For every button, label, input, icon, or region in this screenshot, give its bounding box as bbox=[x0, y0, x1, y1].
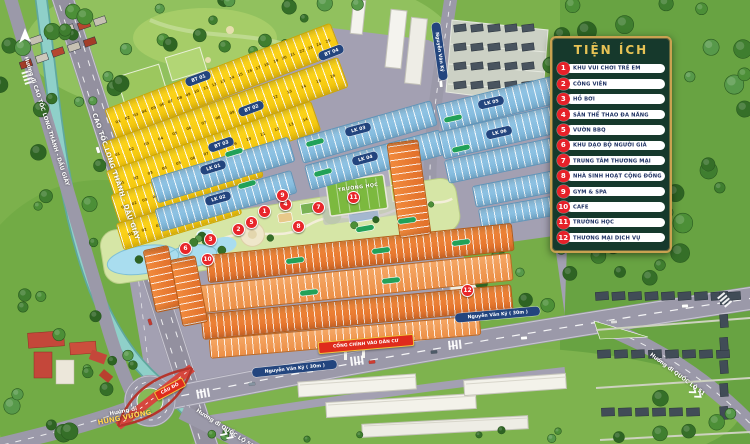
amenity-marker-11: 11 bbox=[347, 191, 360, 204]
legend-item: 12THƯƠNG MẠI DỊCH VỤ bbox=[557, 231, 665, 244]
legend-number-badge: 7 bbox=[557, 154, 570, 167]
legend-number-badge: 1 bbox=[557, 62, 570, 75]
legend-item-label: THƯƠNG MẠI DỊCH VỤ bbox=[573, 234, 641, 240]
legend-item-label: KHU DẠO BỘ NGƯỜI GIÀ bbox=[573, 142, 647, 148]
master-plan-map[interactable]: 0102030405060708091011121314151617181920… bbox=[0, 0, 750, 444]
amenity-marker-12: 12 bbox=[461, 284, 474, 297]
legend-number-badge: 2 bbox=[557, 78, 570, 91]
amenity-marker-1: 1 bbox=[258, 205, 271, 218]
legend-number-badge: 6 bbox=[557, 139, 570, 152]
legend-title: TIỆN ÍCH bbox=[557, 43, 665, 57]
legend-number-badge: 8 bbox=[557, 170, 570, 183]
legend-number-badge: 11 bbox=[557, 216, 570, 229]
legend-item: 2CÔNG VIÊN bbox=[557, 77, 665, 90]
amenity-marker-8: 8 bbox=[292, 220, 305, 233]
legend-number-badge: 10 bbox=[557, 201, 570, 214]
legend-item: 7TRUNG TÂM THƯƠNG MẠI bbox=[557, 154, 665, 167]
legend-item-label: TRUNG TÂM THƯƠNG MẠI bbox=[573, 158, 651, 164]
amenity-marker-10: 10 bbox=[201, 253, 214, 266]
legend-item-label: SÂN THỂ THAO ĐA NĂNG bbox=[573, 111, 649, 117]
legend-item: 6KHU DẠO BỘ NGƯỜI GIÀ bbox=[557, 139, 665, 152]
legend-item: 10CAFE bbox=[557, 201, 665, 214]
legend-item: 1KHU VUI CHƠI TRẺ EM bbox=[557, 62, 665, 75]
legend-item-label: KHU VUI CHƠI TRẺ EM bbox=[573, 65, 641, 71]
legend-number-badge: 9 bbox=[557, 185, 570, 198]
amenity-marker-6: 6 bbox=[179, 242, 192, 255]
legend-panel: TIỆN ÍCH 1KHU VUI CHƠI TRẺ EM 2CÔNG VIÊN… bbox=[550, 36, 672, 253]
legend-number-badge: 5 bbox=[557, 124, 570, 137]
legend-item-label: TRƯỜNG HỌC bbox=[573, 219, 614, 225]
playground bbox=[277, 212, 292, 223]
amenity-marker-7: 7 bbox=[312, 201, 325, 214]
legend-item-label: HỒ BƠI bbox=[573, 96, 595, 102]
legend-item-label: GYM & SPA bbox=[573, 188, 607, 194]
legend-item-label: NHÀ SINH HOẠT CỘNG ĐỒNG bbox=[573, 173, 662, 179]
legend-item: 11TRƯỜNG HỌC bbox=[557, 216, 665, 229]
legend-item-label: VƯỜN BBQ bbox=[573, 127, 606, 133]
legend-item: 3HỒ BƠI bbox=[557, 93, 665, 106]
legend-item: 9GYM & SPA bbox=[557, 185, 665, 198]
legend-item: 5VƯỜN BBQ bbox=[557, 124, 665, 137]
amenity-marker-3: 3 bbox=[204, 233, 217, 246]
legend-number-badge: 3 bbox=[557, 93, 570, 106]
legend-item-label: CAFE bbox=[573, 204, 589, 210]
gate-post bbox=[344, 352, 347, 360]
legend-item-label: CÔNG VIÊN bbox=[573, 81, 607, 87]
legend-item: 8NHÀ SINH HOẠT CỘNG ĐỒNG bbox=[557, 170, 665, 183]
legend-number-badge: 12 bbox=[557, 231, 570, 244]
amenity-marker-9: 9 bbox=[276, 189, 289, 202]
legend-item: 4SÂN THỂ THAO ĐA NĂNG bbox=[557, 108, 665, 121]
amenity-marker-5: 5 bbox=[245, 216, 258, 229]
legend-number-badge: 4 bbox=[557, 108, 570, 121]
amenity-marker-2: 2 bbox=[232, 223, 245, 236]
